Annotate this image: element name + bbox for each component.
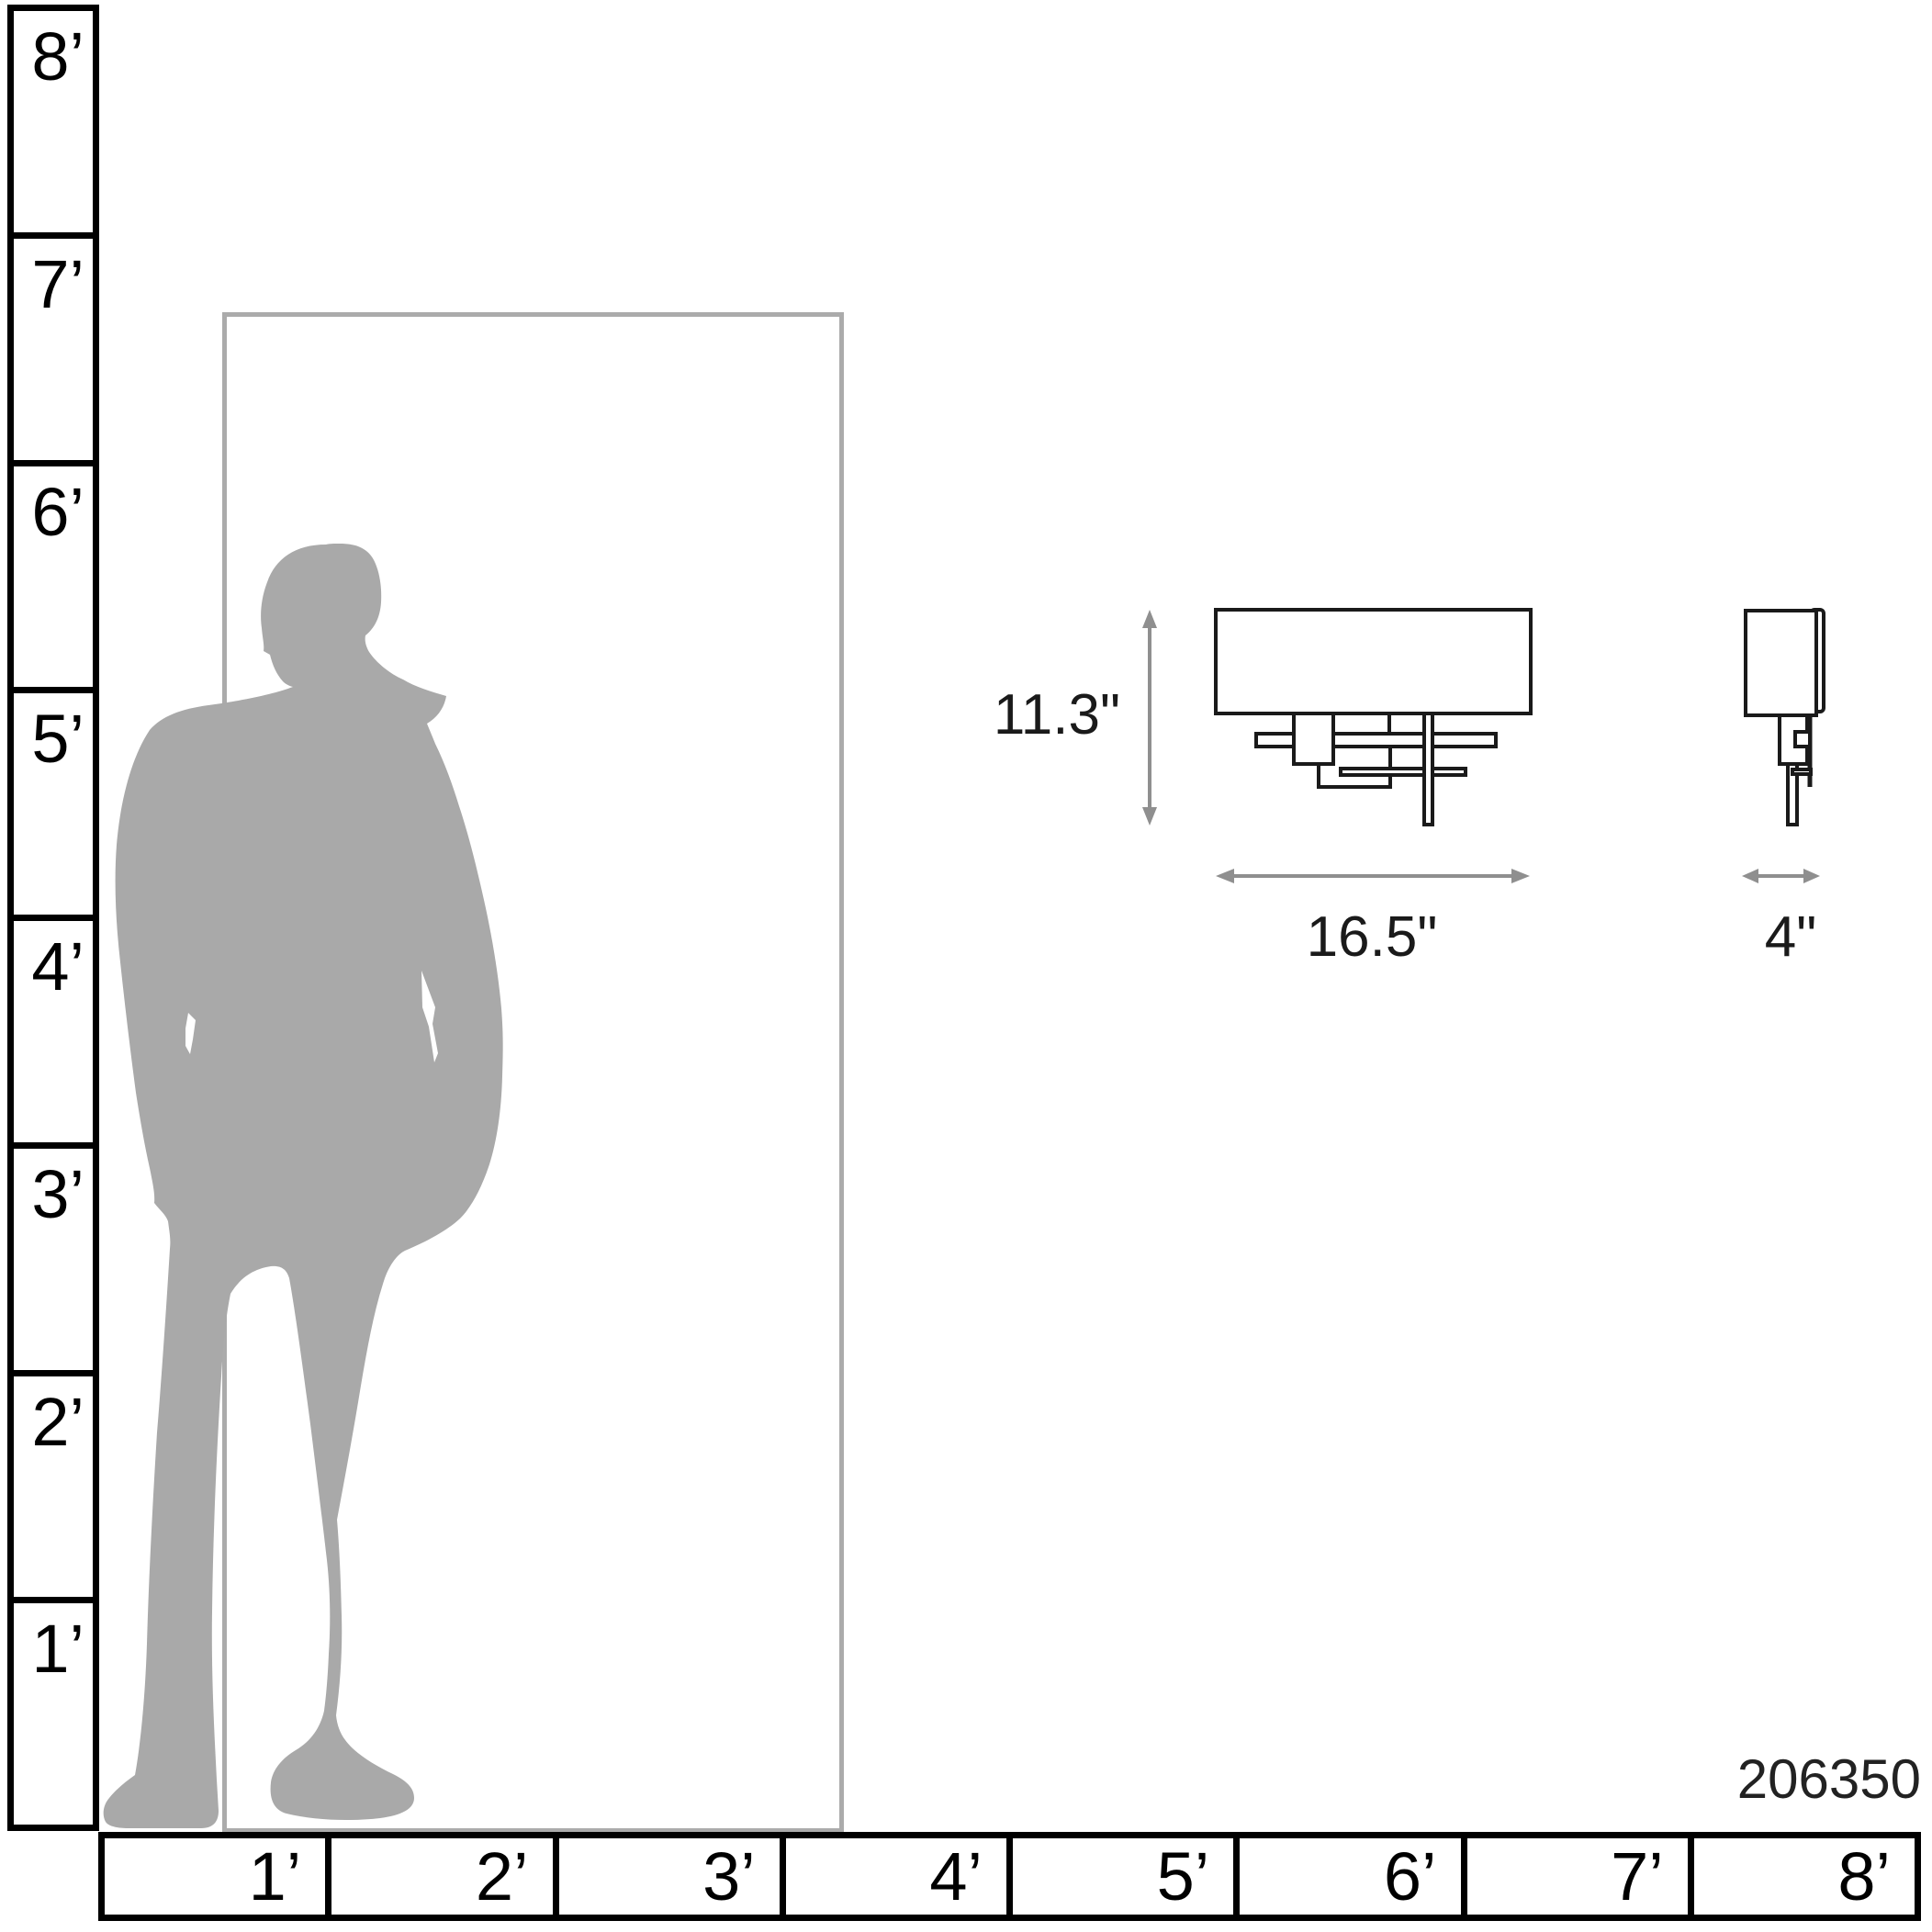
- vertical-ruler-cell: 8’: [14, 11, 93, 232]
- ruler-label: 5’: [31, 701, 84, 777]
- vertical-ruler-cell: 5’: [14, 687, 93, 915]
- sconce-side-shade: [1746, 611, 1816, 715]
- sconce-side-view: [1746, 610, 1824, 825]
- sconce-side-notch: [1795, 732, 1810, 747]
- vertical-ruler-cell: 2’: [14, 1370, 93, 1598]
- horizontal-ruler-cell: 5’: [1006, 1838, 1233, 1915]
- vertical-ruler-cell: 6’: [14, 460, 93, 688]
- sconce-side-tab: [1792, 769, 1811, 774]
- ruler-label: 2’: [31, 1384, 84, 1460]
- arrow-left-icon: [1216, 869, 1234, 883]
- ruler-label: 4’: [929, 1843, 983, 1911]
- horizontal-ruler: 1’ 2’ 3’ 4’ 5’ 6’ 7’ 8’: [98, 1832, 1921, 1921]
- arrow-right-icon: [1803, 869, 1820, 883]
- horizontal-ruler-cell: 1’: [105, 1838, 325, 1915]
- ruler-label: 8’: [1837, 1843, 1891, 1911]
- vertical-ruler-cell: 3’: [14, 1142, 93, 1370]
- horizontal-ruler-cell: 7’: [1461, 1838, 1688, 1915]
- arrow-right-icon: [1511, 869, 1530, 883]
- arrow-left-icon: [1742, 869, 1758, 883]
- vertical-ruler-cell: 7’: [14, 232, 93, 460]
- product-number: 206350: [1600, 1752, 1921, 1807]
- sconce-front-shade: [1216, 610, 1531, 713]
- vertical-ruler: 8’ 7’ 6’ 5’ 4’ 3’ 2’ 1’: [7, 5, 99, 1831]
- ruler-label: 2’: [476, 1843, 529, 1911]
- person-silhouette: [104, 544, 503, 1828]
- ruler-label: 1’: [249, 1843, 302, 1911]
- horizontal-ruler-cell: 2’: [325, 1838, 552, 1915]
- height-dimension-arrow: [1142, 610, 1157, 826]
- arrow-up-icon: [1142, 610, 1157, 628]
- ruler-label: 8’: [31, 18, 84, 95]
- ruler-label: 4’: [31, 928, 84, 1005]
- ruler-label: 7’: [1611, 1843, 1664, 1911]
- height-dimension-label: 11.3": [927, 687, 1120, 744]
- ruler-label: 3’: [31, 1156, 84, 1232]
- horizontal-ruler-cell: 3’: [553, 1838, 780, 1915]
- horizontal-ruler-cell: 4’: [780, 1838, 1006, 1915]
- ruler-label: 3’: [702, 1843, 756, 1911]
- width-dimension-label: 16.5": [1225, 909, 1519, 966]
- sconce-front-rod: [1424, 713, 1432, 825]
- ruler-label: 7’: [31, 246, 84, 322]
- sconce-front-block: [1294, 713, 1333, 764]
- horizontal-ruler-cell: 8’: [1688, 1838, 1915, 1915]
- sconce-front-bar-lower: [1341, 769, 1466, 775]
- scale-diagram: 8’ 7’ 6’ 5’ 4’ 3’ 2’ 1’ 1’ 2’ 3’ 4’ 5’ 6…: [0, 0, 1932, 1932]
- ruler-label: 1’: [31, 1611, 84, 1687]
- sconce-front-view: [1216, 610, 1531, 825]
- width-dimension-arrow: [1216, 869, 1530, 883]
- depth-dimension-arrow: [1742, 869, 1820, 883]
- arrow-down-icon: [1142, 807, 1157, 826]
- ruler-label: 6’: [1384, 1843, 1437, 1911]
- horizontal-ruler-cell: 6’: [1233, 1838, 1460, 1915]
- vertical-ruler-cell: 1’: [14, 1597, 93, 1825]
- depth-dimension-label: 4": [1693, 909, 1888, 966]
- vertical-ruler-cell: 4’: [14, 915, 93, 1142]
- diagram-graphics: [0, 0, 1932, 1932]
- ruler-label: 5’: [1157, 1843, 1210, 1911]
- ruler-label: 6’: [31, 474, 84, 550]
